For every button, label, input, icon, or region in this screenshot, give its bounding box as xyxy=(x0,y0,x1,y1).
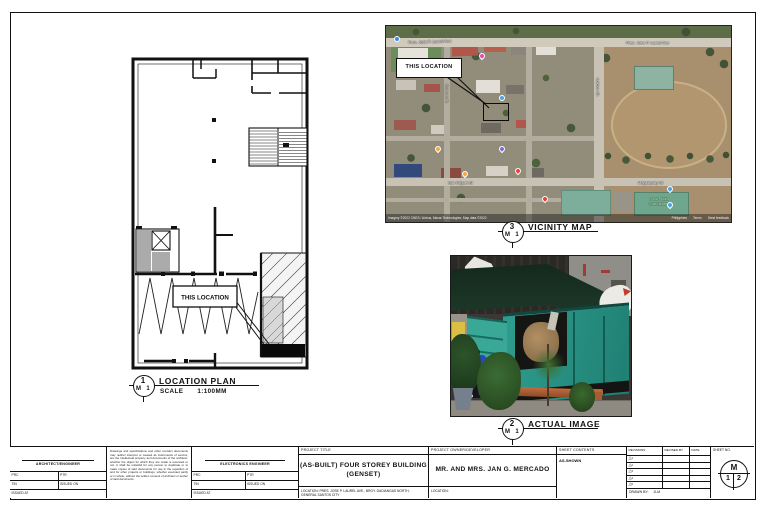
titleblock-sheet-no: SHEET NO. M 1 2 xyxy=(711,447,754,498)
plan-top-right-rooms xyxy=(252,60,307,93)
field-prc: PRC xyxy=(10,472,59,480)
photo-red-mark xyxy=(583,264,586,276)
detail-marker-vicinity-map: 3 M 1 VICINITY MAP xyxy=(502,221,612,255)
sheet-contents-header: SHEET CONTENTS xyxy=(557,447,626,455)
plan-genset-area xyxy=(261,253,306,357)
field-issued-on: ISSUED ON xyxy=(59,481,107,489)
map-attribution-feedback: Send feedback xyxy=(708,214,729,222)
sheet-ref-left: M xyxy=(134,386,143,393)
map-street-label: Pres. Jose P. Laurel Ave xyxy=(626,40,669,45)
genset-frame-line xyxy=(573,312,575,394)
owner-name: MR. AND MRS. JAN G. MERCADO xyxy=(429,466,556,475)
map-street-label: Lukban St xyxy=(596,78,601,96)
scale-value: 1:100MM xyxy=(197,388,226,395)
revision-number: 1 xyxy=(631,456,633,460)
detail-number: 2 xyxy=(502,420,522,428)
sheet-no-letter: M xyxy=(721,463,747,472)
disclaimer-text: Drawings and specifications and other co… xyxy=(107,447,191,485)
sheet-ref-right: 1 xyxy=(144,386,152,393)
owner-location-label: LOCATION: xyxy=(429,487,556,494)
project-title-header: PROJECT TITLE xyxy=(299,447,428,455)
sheet-contents-value: AS-SHOWN xyxy=(557,455,626,466)
field-tin: TIN xyxy=(10,481,59,489)
map-pin-blue-icon xyxy=(499,95,505,101)
project-title-line2: (GENSET) xyxy=(299,471,428,480)
location-plan-drawing: THIS LOCATION xyxy=(131,57,309,372)
plant xyxy=(477,352,521,410)
sheet-ref-left: M xyxy=(503,232,512,239)
plan-top-center-walls xyxy=(193,60,216,78)
map-street-label: Salazar St xyxy=(445,84,450,102)
vicinity-map-image: THIS LOCATION Pres. Jose P. Laurel Ave P… xyxy=(385,25,732,223)
map-attribution-terms: Terms xyxy=(693,214,702,222)
titleblock-disclaimer: Drawings and specifications and other co… xyxy=(107,447,192,498)
sheet-no-header: SHEET NO. xyxy=(711,447,754,453)
revision-number: 4 xyxy=(631,476,633,480)
signature-area: ARCHITECT/ENGINEER xyxy=(10,447,106,472)
titleblock-engineer: ELECTRONICS ENGINEER PRC PTR TIN ISSUED … xyxy=(192,447,299,498)
owner-header: PROJECT OWNER/DEVELOPER xyxy=(429,447,556,455)
project-location: LOCATION: PRES. JOSE P. LAUREL AVE., BRG… xyxy=(299,487,428,498)
detail-marker-location-plan: 1 M 1 LOCATION PLAN SCALE1:100MM xyxy=(133,375,283,409)
plan-this-location-callout: THIS LOCATION xyxy=(173,286,269,346)
sheet-no-digit: 2 xyxy=(734,475,744,482)
sheet-no-circle: M 1 2 xyxy=(720,460,748,488)
map-attribution: Imagery ©2022 CNES / Airbus, Maxar Techn… xyxy=(386,214,731,222)
drawing-sheet: THIS LOCATION 1 M 1 LOCATION PLAN SCALE1… xyxy=(0,0,768,512)
map-callout-this-location: THIS LOCATION xyxy=(396,58,462,78)
map-target-outline xyxy=(483,103,509,121)
field-ptr: PTR xyxy=(59,472,107,480)
actual-photo xyxy=(450,255,632,417)
plant xyxy=(569,382,595,412)
title-block: ARCHITECT/ENGINEER PRC PTR TIN ISSUED ON… xyxy=(10,446,754,498)
sheet-no-digit: 1 xyxy=(723,475,733,482)
scale-label: SCALE xyxy=(160,388,183,395)
plan-stair-elevator-left xyxy=(136,226,179,272)
field-tin: TIN xyxy=(192,481,246,489)
map-leader-lines xyxy=(386,26,731,222)
architect-label: ARCHITECT/ENGINEER xyxy=(10,462,106,466)
field-issued-on: ISSUED ON xyxy=(246,481,299,489)
detail-number: 1 xyxy=(133,377,153,385)
titleblock-architect: ARCHITECT/ENGINEER PRC PTR TIN ISSUED ON… xyxy=(10,447,107,498)
titleblock-project: PROJECT TITLE (AS-BUILT) FOUR STOREY BUI… xyxy=(299,447,429,498)
sheet-no-divider xyxy=(718,473,750,474)
photo-ground xyxy=(451,400,631,417)
engineer-label: ELECTRONICS ENGINEER xyxy=(192,462,298,466)
field-issued-at: ISSUED AT xyxy=(10,490,106,498)
drawn-by-value: JLM xyxy=(654,490,661,494)
revision-number: 5 xyxy=(631,482,633,486)
revised-by-header: REVISED BY xyxy=(663,447,690,455)
revisions-header: REVISIONS xyxy=(627,447,663,455)
map-attribution-region: Philippines xyxy=(672,214,687,222)
revision-number: 3 xyxy=(631,469,633,473)
plan-bottom-walls xyxy=(144,353,215,368)
plan-callout-label: THIS LOCATION xyxy=(181,295,229,302)
titleblock-sheet-contents: SHEET CONTENTS AS-SHOWN xyxy=(557,447,627,498)
map-street-label: San Miguel St xyxy=(448,180,473,185)
field-issued-at: ISSUED AT xyxy=(192,490,298,498)
titleblock-revisions: REVISIONS REVISED BY DATE △1 △2 △3 △4 △5… xyxy=(627,447,711,498)
project-title-line1: (AS-BUILT) FOUR STOREY BUILDING xyxy=(299,462,428,471)
field-ptr: PTR xyxy=(246,472,299,480)
titleblock-owner: PROJECT OWNER/DEVELOPER MR. AND MRS. JAN… xyxy=(429,447,557,498)
drawn-by-label: DRAWN BY: xyxy=(629,490,649,494)
sheet-ref-right: 1 xyxy=(513,232,521,239)
map-pin-blue-icon xyxy=(394,36,400,42)
date-header: DATE xyxy=(690,447,710,455)
detail-number: 3 xyxy=(502,223,522,231)
field-prc: PRC xyxy=(192,472,246,480)
signature-area: ELECTRONICS ENGINEER xyxy=(192,447,298,472)
sheet-ref-right: 1 xyxy=(513,429,521,436)
revision-number: 2 xyxy=(631,463,633,467)
photo-red-mark xyxy=(601,270,610,273)
sheet-ref-left: M xyxy=(503,429,512,436)
plan-columns xyxy=(212,118,216,163)
plan-stair-right xyxy=(249,128,307,166)
map-street-label: Magsaysay St xyxy=(638,180,663,185)
map-attribution-text: Imagery ©2022 CNES / Airbus, Maxar Techn… xyxy=(388,214,487,222)
plant xyxy=(533,350,565,380)
